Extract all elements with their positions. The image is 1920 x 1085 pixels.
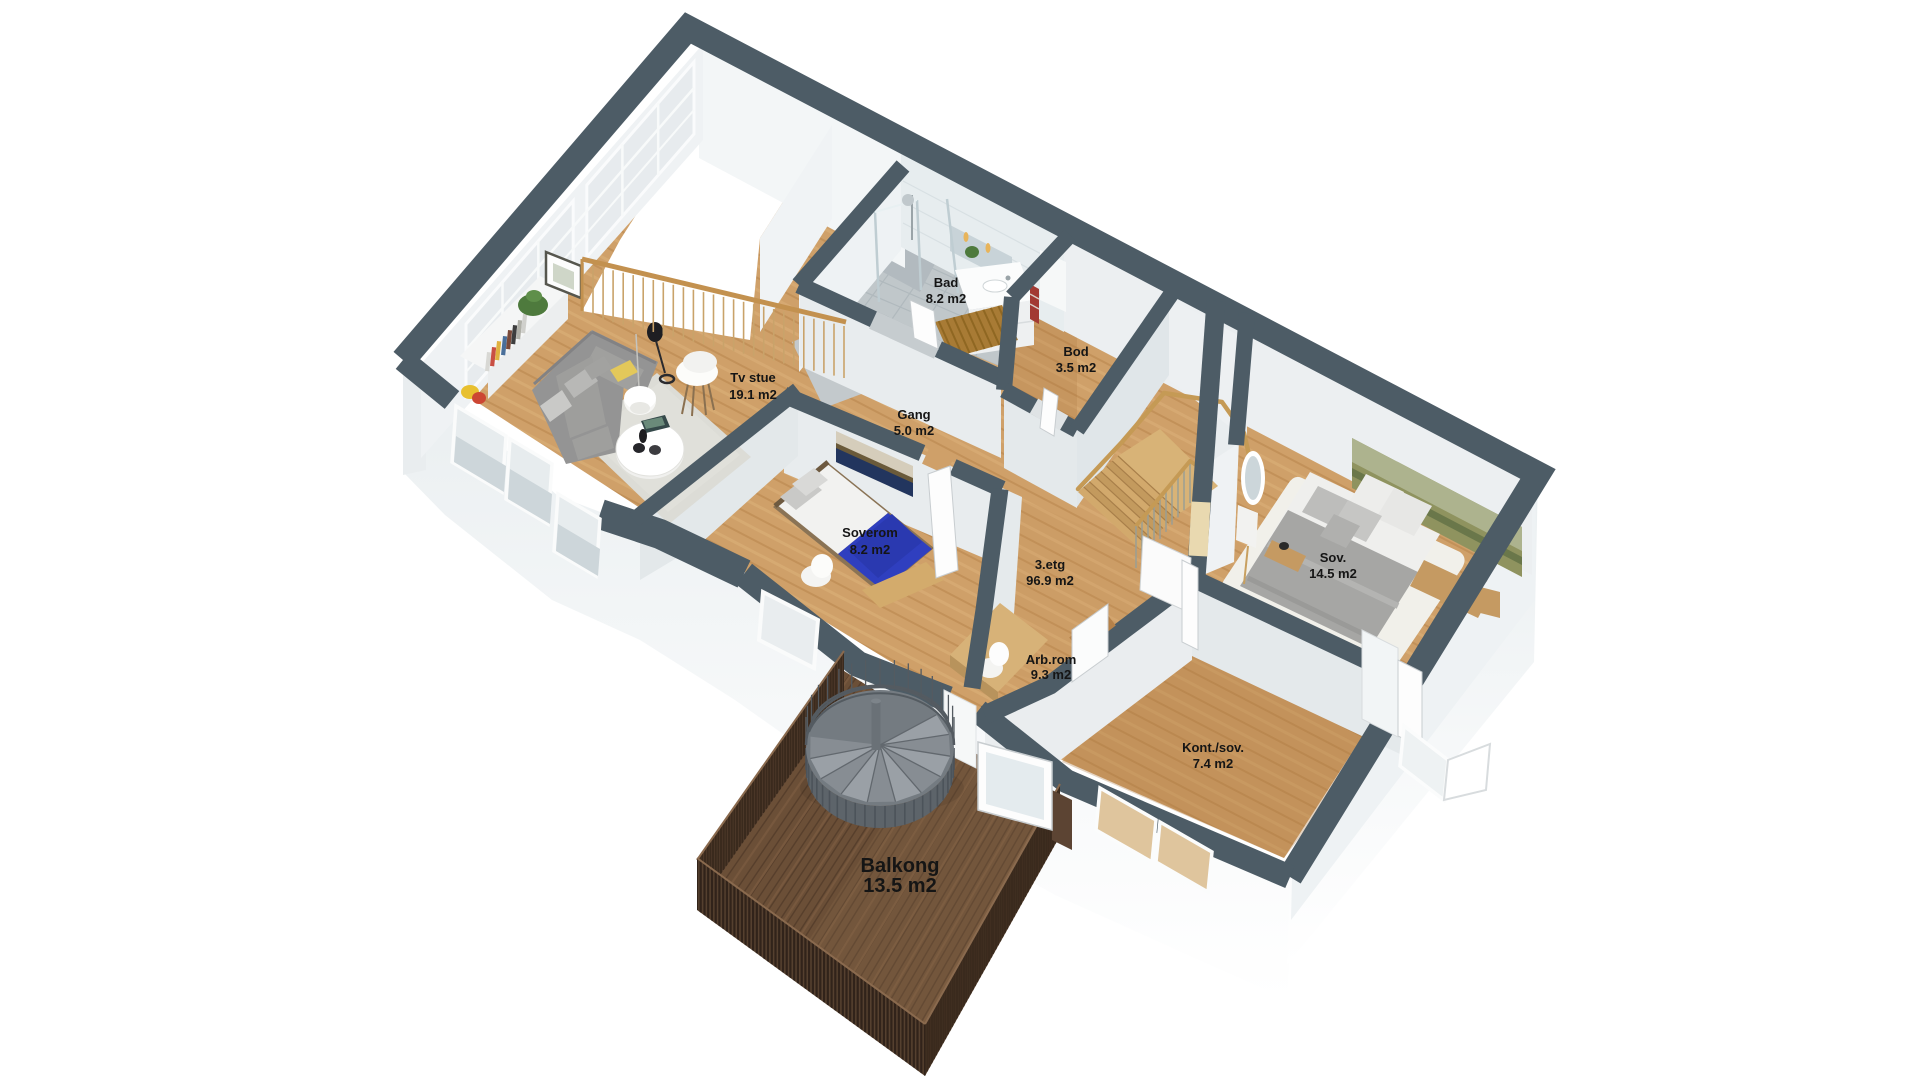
svg-text:13.5 m2: 13.5 m2: [863, 875, 936, 897]
svg-text:Soverom: Soverom: [842, 525, 898, 540]
svg-text:8.2 m2: 8.2 m2: [850, 542, 890, 557]
svg-text:14.5 m2: 14.5 m2: [1309, 566, 1357, 581]
svg-text:Arb.rom: Arb.rom: [1026, 652, 1077, 667]
svg-text:19.1 m2: 19.1 m2: [729, 387, 777, 402]
svg-text:3.5 m2: 3.5 m2: [1056, 360, 1096, 375]
svg-text:7.4 m2: 7.4 m2: [1193, 756, 1233, 771]
svg-text:Bad: Bad: [934, 275, 959, 290]
svg-text:96.9 m2: 96.9 m2: [1026, 573, 1074, 588]
svg-text:Balkong: Balkong: [861, 855, 940, 877]
svg-text:5.0 m2: 5.0 m2: [894, 423, 934, 438]
svg-text:3.etg: 3.etg: [1035, 557, 1065, 572]
svg-text:Kont./sov.: Kont./sov.: [1182, 740, 1244, 755]
svg-text:Gang: Gang: [897, 407, 930, 422]
svg-text:Sov.: Sov.: [1320, 550, 1347, 565]
svg-text:Bod: Bod: [1063, 344, 1088, 359]
svg-text:8.2 m2: 8.2 m2: [926, 291, 966, 306]
svg-text:Tv stue: Tv stue: [730, 370, 776, 385]
svg-text:9.3 m2: 9.3 m2: [1031, 667, 1071, 682]
